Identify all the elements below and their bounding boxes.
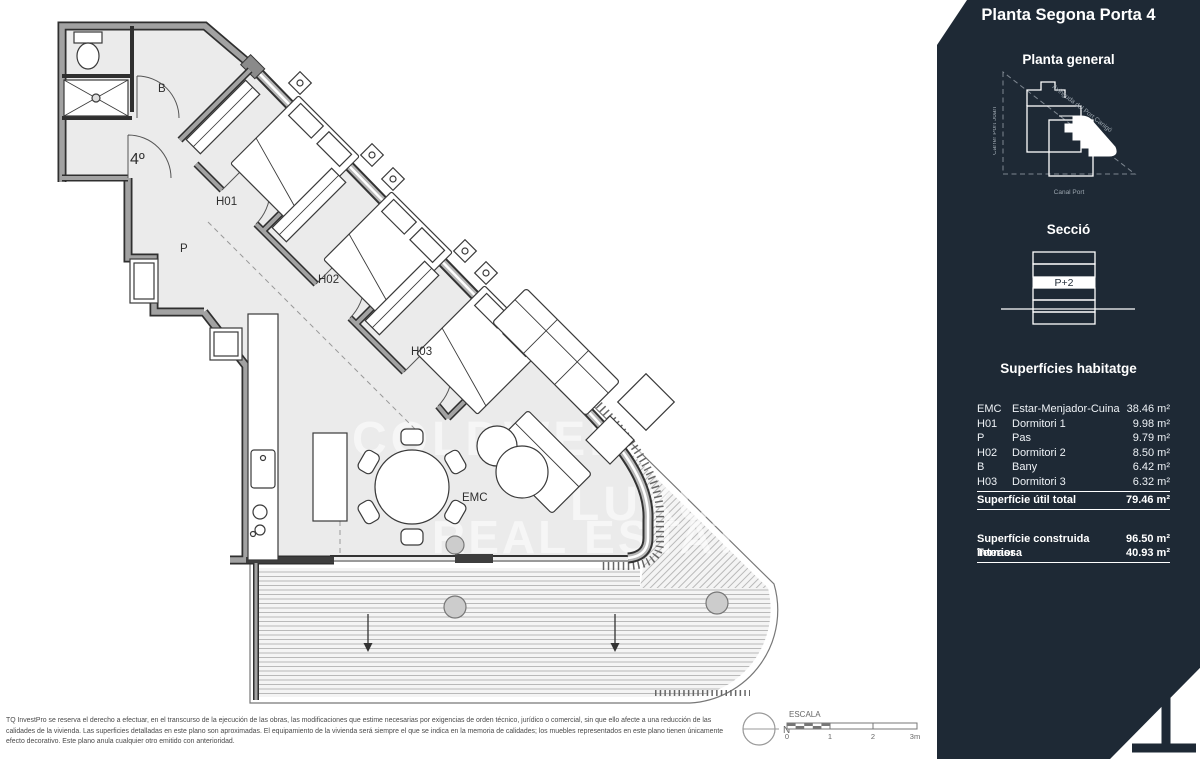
room-code: H03	[977, 475, 1012, 490]
room-name: Pas	[1012, 431, 1133, 446]
laundry-unit	[130, 259, 158, 303]
site-plan-diagram: Carrer Port Joan Avinguda del Port Canig…	[993, 70, 1143, 206]
floor-plan-page: COLDWELL LUXURY REAL ESTATE	[0, 0, 1200, 759]
scale-tick-1: 1	[828, 732, 832, 741]
total-label: Superfície útil total	[977, 492, 1126, 509]
label-pas: P	[180, 243, 188, 255]
terrace-label: Terrassa	[977, 546, 1126, 562]
table-row: H02 Dormitori 2 8.50 m²	[977, 446, 1170, 461]
kitchen-island	[313, 433, 347, 521]
room-area: 9.98 m²	[1133, 417, 1170, 432]
table-row: EMC Estar-Menjador-Cuina 38.46 m²	[977, 402, 1170, 417]
unit-number-label: 4º	[130, 151, 145, 168]
north-arrow-icon	[743, 713, 779, 745]
areas-table: EMC Estar-Menjador-Cuina 38.46 m² H01 Do…	[977, 402, 1170, 563]
room-code: P	[977, 431, 1012, 446]
room-area: 8.50 m²	[1133, 446, 1170, 461]
corner-bracket-icon	[1120, 678, 1200, 759]
scale-bar	[787, 723, 917, 729]
info-sidebar: Planta Segona Porta 4 Planta general Car…	[937, 0, 1200, 759]
room-code: H02	[977, 446, 1012, 461]
terrace-value: 40.93 m²	[1126, 546, 1170, 562]
table-row: H01 Dormitori 1 9.98 m²	[977, 417, 1170, 432]
built-label: Superfície construida interior	[977, 532, 1126, 547]
table-row: H03 Dormitori 3 6.32 m²	[977, 475, 1170, 490]
room-area: 9.79 m²	[1133, 431, 1170, 446]
page-title: Planta Segona Porta 4	[937, 6, 1200, 25]
label-h02: H02	[318, 274, 339, 286]
site-plan-heading: Planta general	[937, 52, 1200, 67]
room-name: Estar-Menjador-Cuina	[1012, 402, 1127, 417]
room-code: EMC	[977, 402, 1012, 417]
room-area: 6.42 m²	[1133, 460, 1170, 475]
room-name: Dormitori 1	[1012, 417, 1133, 432]
coffee-table	[496, 446, 548, 498]
scale-and-north: N ESCALA 0 1 2 3m	[743, 710, 920, 745]
built-area-row: Superfície construida interior 96.50 m²	[977, 532, 1170, 547]
total-value: 79.46 m²	[1126, 492, 1170, 509]
shower	[64, 80, 128, 116]
table-row: P Pas 9.79 m²	[977, 431, 1170, 446]
scale-tick-3: 3m	[910, 732, 920, 741]
areas-heading: Superfícies habitatge	[937, 361, 1200, 376]
scale-tick-2: 2	[871, 732, 875, 741]
floor-label: P+2	[1055, 277, 1074, 289]
label-h03: H03	[411, 346, 432, 358]
scale-label: ESCALA	[789, 710, 821, 719]
section-heading: Secció	[937, 222, 1200, 237]
label-emc: EMC	[462, 492, 488, 504]
room-area: 6.32 m²	[1133, 475, 1170, 490]
street-label-bottom: Canal Port	[1054, 189, 1085, 196]
total-useful-area-row: Superfície útil total 79.46 m²	[977, 491, 1170, 510]
table-row: B Bany 6.42 m²	[977, 460, 1170, 475]
room-area: 38.46 m²	[1127, 402, 1170, 417]
label-h01: H01	[216, 196, 237, 208]
floor-plan-drawing: COLDWELL LUXURY REAL ESTATE	[0, 0, 940, 759]
section-diagram: P+2	[993, 250, 1143, 332]
room-code: H01	[977, 417, 1012, 432]
room-code: B	[977, 460, 1012, 475]
terrace-area-row: Terrassa 40.93 m²	[977, 546, 1170, 563]
scale-tick-0: 0	[785, 732, 789, 741]
street-label-left: Carrer Port Joan	[993, 107, 998, 155]
label-bany: B	[158, 83, 166, 95]
disclaimer-text: TQ InvestPro se reserva el derecho a efe…	[6, 716, 730, 748]
built-value: 96.50 m²	[1126, 532, 1170, 547]
room-name: Dormitori 3	[1012, 475, 1133, 490]
room-name: Dormitori 2	[1012, 446, 1133, 461]
room-name: Bany	[1012, 460, 1133, 475]
